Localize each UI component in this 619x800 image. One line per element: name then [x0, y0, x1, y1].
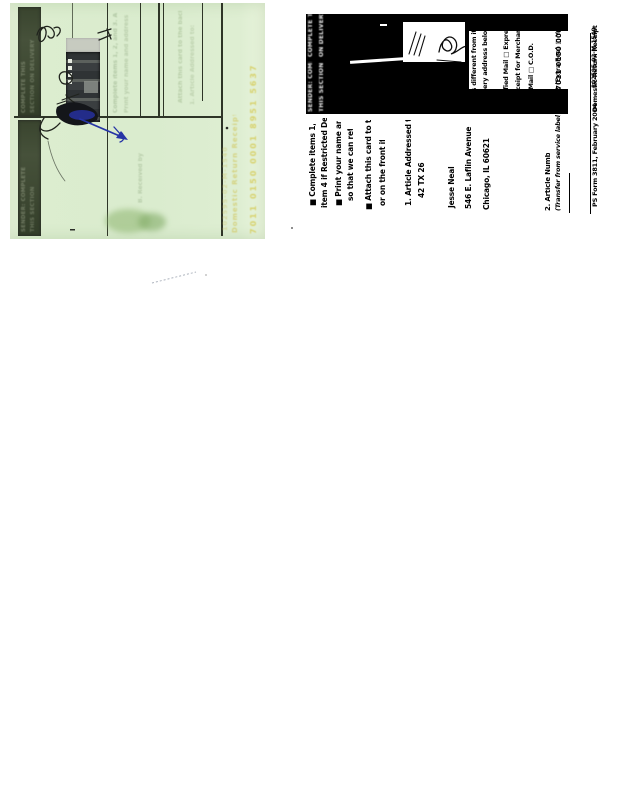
addressee-line: 546 E. Laflin Avenue: [465, 127, 473, 209]
handwriting-annotations: [10, 3, 265, 239]
header-delivery: COMPLETE THIS SECTION: [308, 13, 314, 57]
registered-line: □ Registered □ Return Receipt for Mercha…: [515, 31, 522, 89]
instruction-line: ■ Print your name and address on the rev…: [335, 121, 343, 206]
addressee-line: 42 TX 26: [418, 163, 426, 198]
form-rule: [569, 173, 570, 213]
footer-code: 102595-02-M-1540: [592, 28, 598, 88]
article-number-label: 2. Article Number: [545, 153, 552, 211]
instruction-line: ■ Attach this card to the back of the ma…: [365, 120, 373, 210]
pen-dot: [226, 127, 229, 130]
blue-arrowhead: [116, 131, 128, 140]
signature-box: [403, 22, 465, 62]
blue-ink-block: [69, 110, 95, 120]
header-delivery-line2: ON DELIVERY: [319, 13, 325, 57]
pen-thin-curve: [48, 141, 65, 181]
addressee-line: Chicago, IL 60621: [483, 138, 491, 210]
instruction-line: ■ Complete items 1, 2, and 3. Also compl…: [309, 124, 317, 206]
pen-tail: [40, 118, 60, 139]
transfer-label: (Transfer from service label): [555, 115, 562, 211]
pen-dash: [70, 229, 75, 231]
insured-line: □ Insured Mail □ C.O.D.: [528, 43, 535, 89]
pen-circle: [59, 72, 72, 84]
delivery-different-line: D. Is delivery address different from it…: [471, 31, 478, 89]
pen-loops: [37, 26, 54, 41]
signature-scribble: [403, 22, 465, 62]
instruction-line: so that we can return the card to you.: [347, 129, 355, 201]
header-sender: SENDER: COMPLETE: [308, 62, 314, 112]
green-return-receipt-card: COMPLETE THIS SECTION ON DELIVERY SENDER…: [10, 3, 265, 239]
article-addressed-label: 1. Article Addressed to:: [405, 120, 413, 206]
instruction-line: or on the front if space permits.: [379, 140, 387, 206]
instruction-line: item 4 if Restricted Delivery is desired…: [321, 118, 329, 208]
delivery-enter-line: If YES, enter delivery address below: □ …: [482, 31, 489, 89]
addressee-line: Jesse Neal: [448, 167, 456, 209]
scan-streak: [380, 24, 387, 26]
scan-speck: [291, 227, 293, 229]
header-sender-line2: THIS SECTION: [319, 62, 325, 112]
pen-arrow-marks: [98, 29, 111, 40]
article-number: 7011 0150 0001 8951 5637: [556, 30, 563, 90]
scanned-mail-page: COMPLETE THIS SECTION ON DELIVERY SENDER…: [0, 0, 619, 800]
delivery-options-box: D. Is delivery address different from it…: [469, 31, 568, 89]
service-type-line: 3. Service Type □ Certified Mail □ Expre…: [503, 31, 510, 89]
scan-speck: [205, 274, 207, 276]
blue-arrow: [80, 119, 124, 142]
footer-form: PS Form 3811, February 2004: [592, 104, 599, 207]
pencil-mark: [150, 266, 210, 288]
